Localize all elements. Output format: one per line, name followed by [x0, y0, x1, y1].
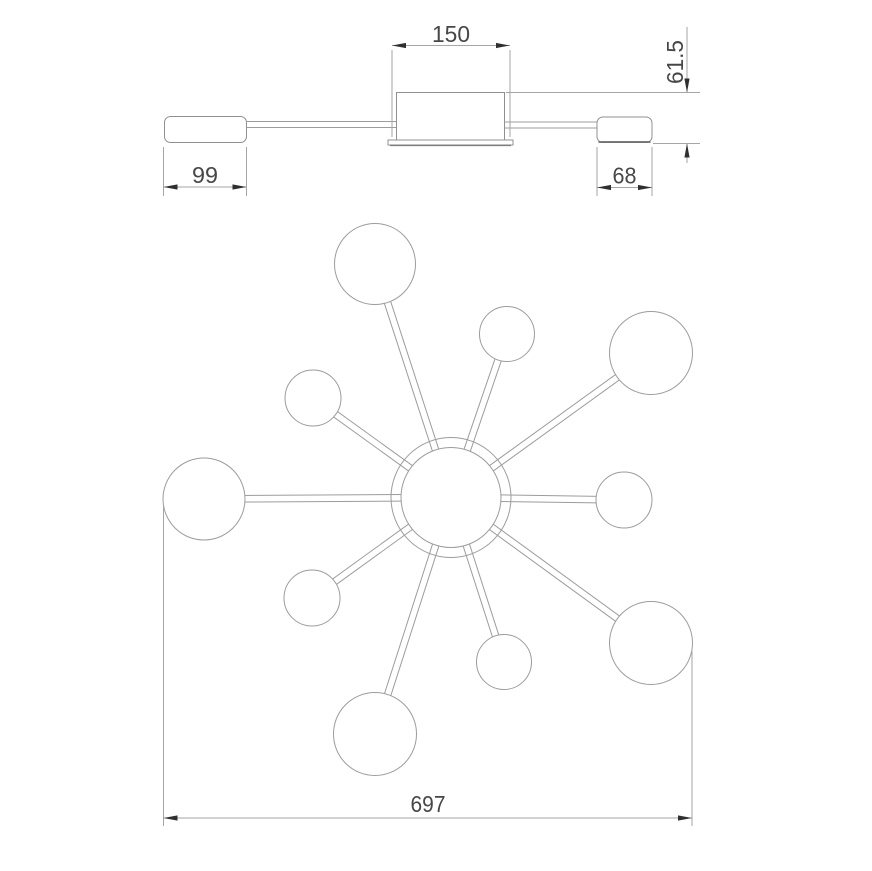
drawing-svg: 150 61.5 99 68	[0, 0, 872, 871]
dim-arrow-left	[392, 43, 406, 48]
dim-arrow-right	[233, 184, 247, 189]
plan-view	[163, 224, 693, 776]
lamp-circle	[285, 370, 341, 426]
dim-arrow-right	[638, 185, 652, 190]
dim-label-150: 150	[432, 21, 470, 47]
left-cap-shape	[165, 117, 247, 143]
right-cap-shape	[597, 117, 652, 143]
technical-drawing-page: 150 61.5 99 68	[0, 0, 872, 871]
lamp-circle	[610, 602, 693, 685]
dim-arrow-left	[597, 185, 611, 190]
dimension-left-cap-width: 99	[164, 147, 247, 196]
lamp-circle	[596, 472, 652, 528]
dim-label-68: 68	[613, 163, 637, 189]
dim-label-697: 697	[411, 791, 446, 817]
dim-arrow-left	[164, 815, 178, 820]
dim-arrow-left	[164, 184, 178, 189]
central-body-shape	[397, 93, 505, 141]
dimension-right-cap-width: 68	[597, 147, 652, 196]
lamp-circle	[334, 693, 417, 776]
dim-arrow-up	[684, 144, 689, 158]
dim-label-99: 99	[192, 162, 218, 188]
dim-label-61-5: 61.5	[662, 40, 688, 84]
lamp-circle	[480, 307, 535, 362]
hub-inner-circle	[401, 448, 501, 548]
lamp-circle	[163, 458, 245, 540]
lamp-circle	[284, 570, 340, 626]
lamp-circle	[477, 635, 532, 690]
lamp-circle	[335, 224, 416, 305]
dimension-total-width: 697	[164, 506, 693, 826]
lamp-circle	[610, 312, 693, 395]
dim-arrow-right	[496, 43, 510, 48]
side-elevation-view	[165, 93, 653, 146]
dim-arrow-right	[678, 815, 692, 820]
base-plate-shape	[388, 140, 513, 145]
